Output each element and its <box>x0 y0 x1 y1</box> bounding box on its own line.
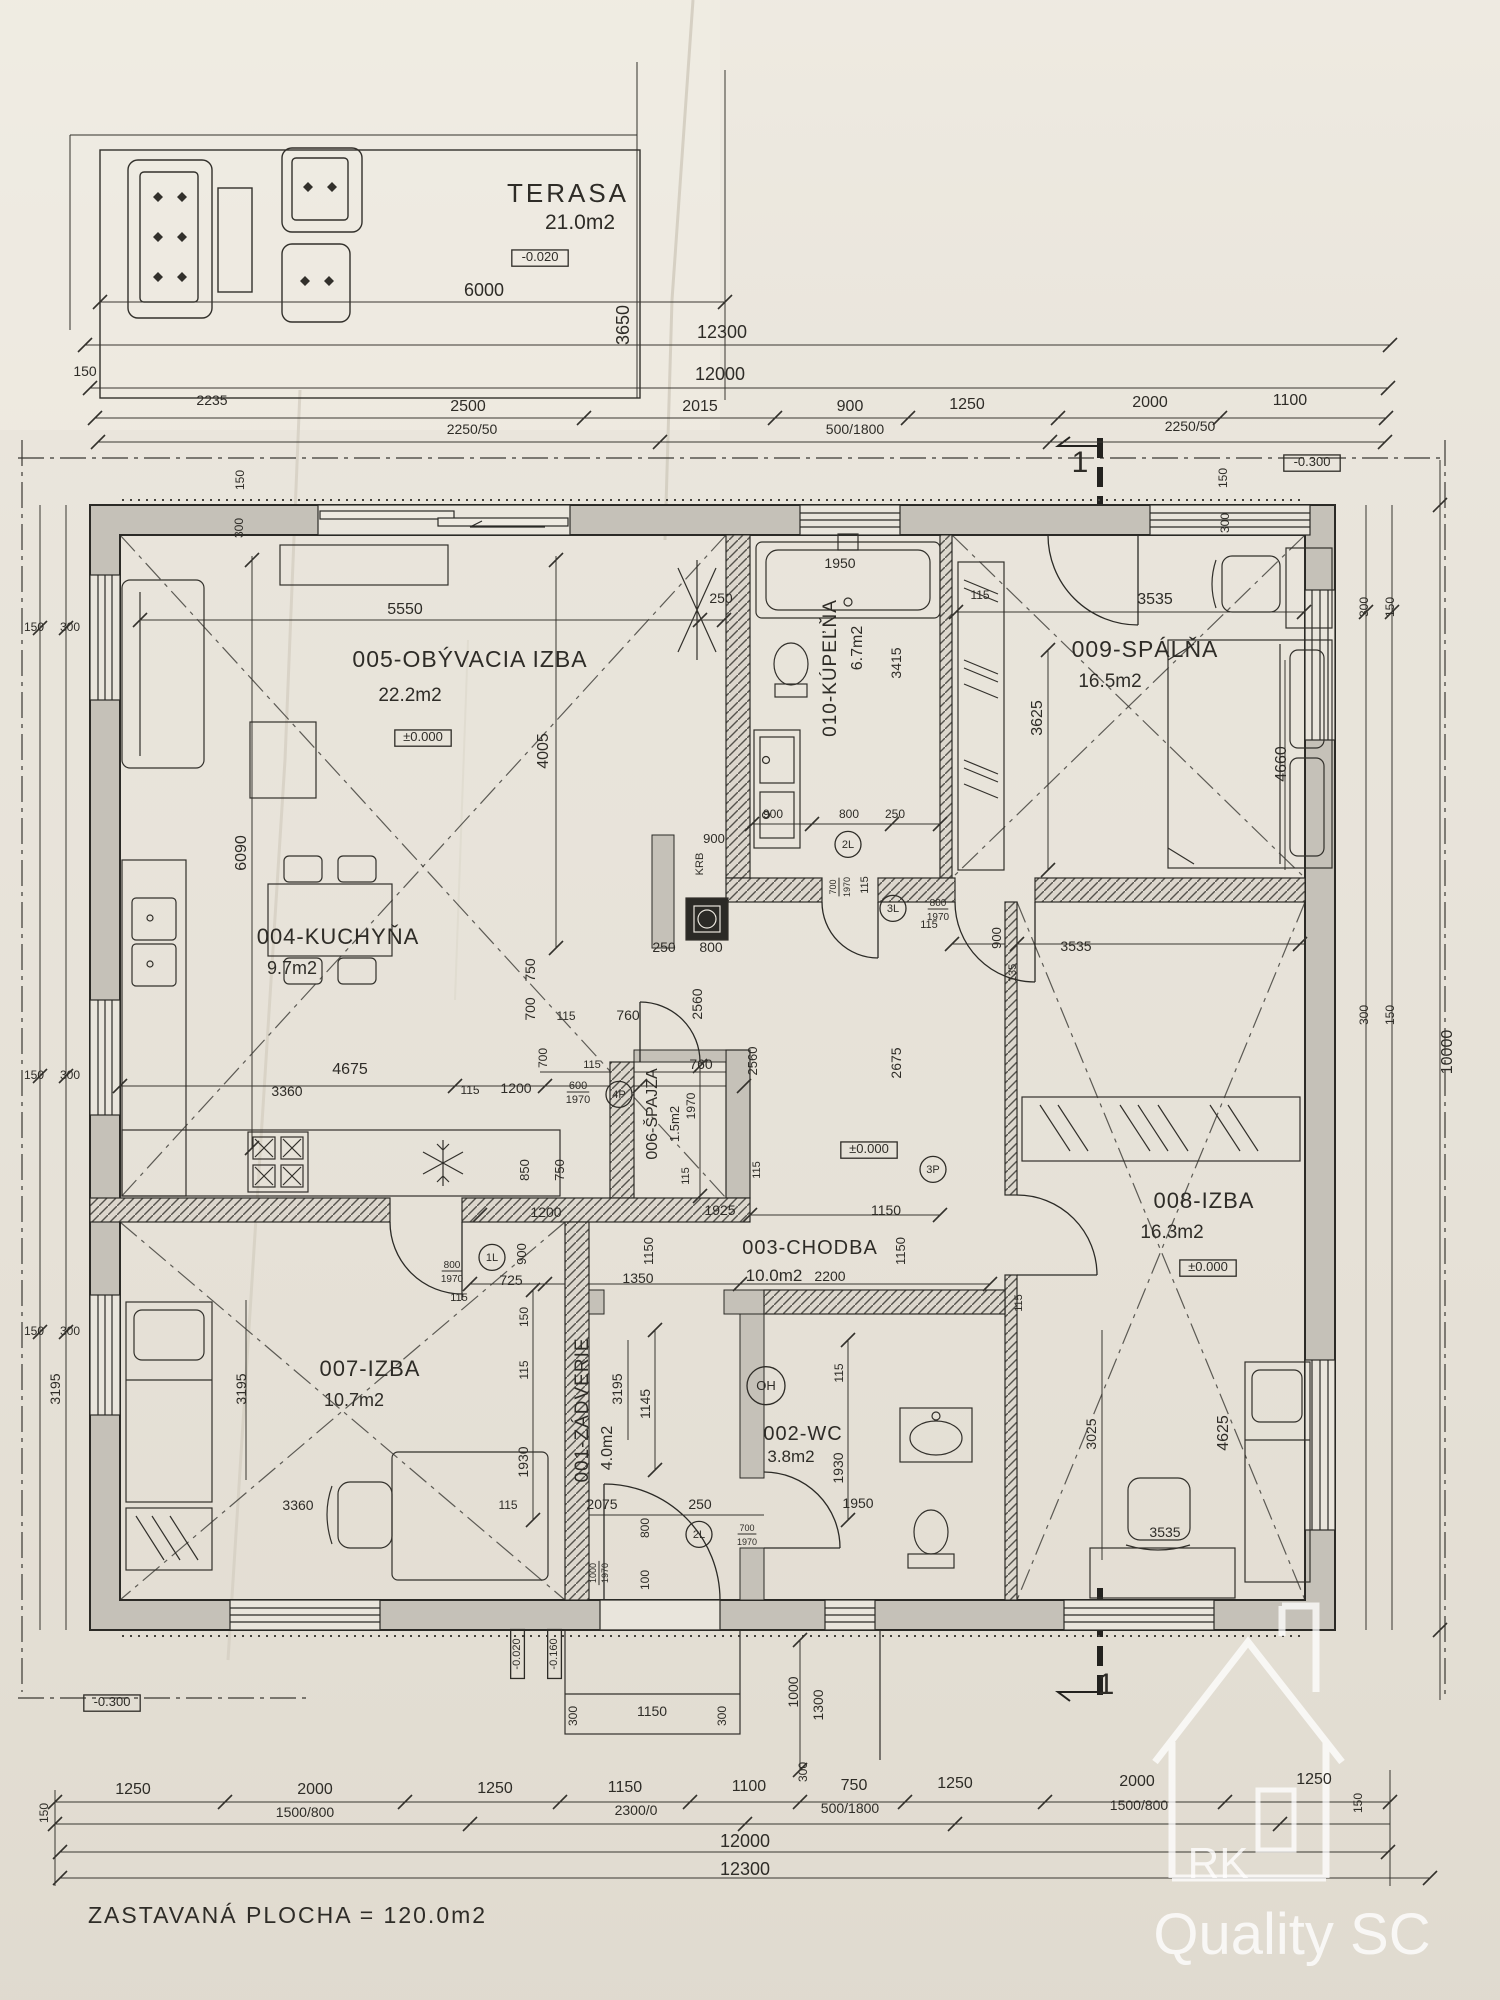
svg-text:800: 800 <box>699 939 723 955</box>
svg-text:2500: 2500 <box>450 398 486 415</box>
svg-text:2235: 2235 <box>196 392 227 408</box>
dim-label: 100 <box>638 1570 652 1590</box>
dim-label: 5550 <box>387 601 423 618</box>
svg-text:TERASA: TERASA <box>507 178 629 208</box>
dim-label: 3415 <box>888 647 904 678</box>
svg-text:008-IZBA: 008-IZBA <box>1154 1188 1255 1213</box>
svg-text:300: 300 <box>232 518 246 538</box>
svg-text:3195: 3195 <box>233 1373 249 1404</box>
svg-text:2560: 2560 <box>745 1047 760 1076</box>
dim-label: 1300 <box>810 1689 826 1720</box>
svg-text:300: 300 <box>566 1706 580 1726</box>
svg-text:1970: 1970 <box>566 1094 590 1106</box>
dim-label: 115 <box>517 1360 531 1379</box>
dim-label: 900 <box>989 927 1004 949</box>
svg-text:150: 150 <box>1351 1793 1365 1813</box>
dim-label: 1150 <box>637 1703 667 1719</box>
dim-label: 115 <box>751 1161 763 1179</box>
svg-text:2000: 2000 <box>297 1781 333 1798</box>
text-label: RK <box>1187 1839 1248 1888</box>
svg-text:750: 750 <box>522 958 538 982</box>
svg-text:3535: 3535 <box>1149 1524 1180 1540</box>
svg-text:2L: 2L <box>842 839 854 851</box>
dim-label: 1350 <box>622 1270 653 1286</box>
svg-text:3535: 3535 <box>1060 938 1091 954</box>
dim-label: 725 <box>499 1272 523 1288</box>
svg-text:150: 150 <box>1383 1005 1397 1025</box>
dim-label: 1250 <box>115 1781 151 1798</box>
svg-text:1: 1 <box>1072 446 1089 479</box>
svg-text:1970: 1970 <box>600 1563 610 1583</box>
svg-text:12300: 12300 <box>720 1859 770 1879</box>
svg-text:009-SPÁLŇA: 009-SPÁLŇA <box>1072 636 1219 662</box>
text-label: ZASTAVANÁ PLOCHA = 120.0m2 <box>88 1902 487 1928</box>
svg-text:±0.000: ±0.000 <box>403 729 443 744</box>
svg-text:1250: 1250 <box>937 1775 973 1792</box>
svg-text:2L: 2L <box>693 1529 705 1541</box>
svg-text:1100: 1100 <box>732 1778 767 1795</box>
dim-label: 700 <box>738 1523 757 1534</box>
dim-label: 2000 <box>1119 1773 1155 1790</box>
svg-text:6090: 6090 <box>233 835 250 871</box>
svg-text:ZASTAVANÁ PLOCHA = 120.0m2: ZASTAVANÁ PLOCHA = 120.0m2 <box>88 1902 487 1928</box>
svg-text:1: 1 <box>1098 1668 1115 1701</box>
svg-text:10.7m2: 10.7m2 <box>324 1390 384 1410</box>
svg-text:-0.020: -0.020 <box>511 1638 523 1669</box>
dim-label: 4625 <box>1215 1415 1232 1451</box>
text-label: 001-ZÁDVERIE <box>572 1337 593 1482</box>
svg-text:9.7m2: 9.7m2 <box>267 958 317 978</box>
svg-text:004-KUCHYŇA: 004-KUCHYŇA <box>257 924 420 949</box>
window-living-left <box>90 575 120 700</box>
svg-text:150: 150 <box>24 620 44 634</box>
svg-text:1150: 1150 <box>871 1202 901 1218</box>
svg-text:005-OBÝVACIA IZBA: 005-OBÝVACIA IZBA <box>352 646 587 672</box>
dim-label: 1250 <box>937 1775 973 1792</box>
dim-label: 750 <box>552 1159 567 1181</box>
svg-text:1950: 1950 <box>842 1495 873 1511</box>
dim-label: 900 <box>703 831 725 846</box>
svg-text:760: 760 <box>616 1007 640 1023</box>
svg-text:115: 115 <box>751 1161 763 1179</box>
fireplace <box>686 898 728 940</box>
svg-text:3535: 3535 <box>1137 591 1173 608</box>
text-label: 005-OBÝVACIA IZBA <box>352 646 587 672</box>
dim-label: 1200 <box>500 1080 531 1096</box>
svg-text:300: 300 <box>60 620 80 634</box>
svg-text:1200: 1200 <box>530 1204 561 1220</box>
dim-label: 1000 <box>588 1561 599 1585</box>
svg-text:750: 750 <box>552 1159 567 1181</box>
dim-label: 1930 <box>830 1452 846 1483</box>
svg-text:1500/800: 1500/800 <box>1110 1797 1169 1813</box>
svg-text:3025: 3025 <box>1083 1418 1099 1449</box>
dim-label: 2250/50 <box>1165 418 1216 434</box>
svg-text:1145: 1145 <box>637 1389 653 1419</box>
dim-label: 2075 <box>586 1496 617 1512</box>
dim-label: 800 <box>928 898 949 909</box>
svg-text:1950: 1950 <box>824 555 855 571</box>
svg-text:-0.020: -0.020 <box>522 249 559 264</box>
dim-label: 10.0m2 <box>746 1266 803 1285</box>
text-label: Quality SC <box>1153 1902 1430 1967</box>
dim-label: 150 <box>1351 1793 1365 1813</box>
svg-text:150: 150 <box>233 470 247 490</box>
svg-text:010-KÚPEĽŇA: 010-KÚPEĽŇA <box>819 599 841 737</box>
svg-text:KRB: KRB <box>694 853 706 876</box>
dim-label: 115 <box>680 1167 692 1185</box>
svg-text:12300: 12300 <box>697 322 747 342</box>
dim-label: 1150 <box>871 1202 901 1218</box>
dim-label: 3535 <box>1137 591 1173 608</box>
svg-text:-0.300: -0.300 <box>1294 454 1331 469</box>
dim-label: 1250 <box>949 396 985 413</box>
svg-text:900: 900 <box>703 831 725 846</box>
dim-label: 2675 <box>888 1047 904 1078</box>
svg-text:-0.160: -0.160 <box>548 1638 560 1669</box>
dim-label: 1925 <box>704 1202 735 1218</box>
svg-text:760: 760 <box>689 1056 713 1072</box>
dim-label: 150 <box>233 470 247 490</box>
dim-label: 115 <box>1013 1294 1025 1312</box>
svg-text:Quality SC: Quality SC <box>1153 1902 1430 1967</box>
dim-label: 3360 <box>282 1497 313 1513</box>
svg-text:1970: 1970 <box>684 1092 698 1119</box>
svg-text:800: 800 <box>638 1518 652 1538</box>
dim-label: 300 <box>796 1762 810 1782</box>
dim-label: 16.5m2 <box>1078 671 1141 692</box>
dim-label: 115 <box>498 1498 517 1512</box>
svg-text:900: 900 <box>989 927 1004 949</box>
svg-text:250: 250 <box>885 807 905 821</box>
dim-label: 600 <box>567 1080 589 1092</box>
dim-label: ±0.000 <box>395 729 451 746</box>
svg-text:150: 150 <box>24 1324 44 1338</box>
svg-text:1925: 1925 <box>704 1202 735 1218</box>
dim-label: 10.7m2 <box>324 1390 384 1410</box>
dim-label: 115 <box>583 1059 601 1071</box>
svg-text:1250: 1250 <box>949 396 985 413</box>
dim-label: 300 <box>1218 513 1232 533</box>
dim-label: 1200 <box>530 1204 561 1220</box>
window-kitchen-left <box>90 1000 120 1115</box>
dim-label: 1 <box>1072 446 1089 479</box>
dim-label: 1150 <box>641 1237 656 1265</box>
svg-text:1970: 1970 <box>842 877 852 897</box>
dim-label: 1100 <box>732 1778 767 1795</box>
window-bath-top <box>800 505 900 535</box>
text-label: TERASA <box>507 178 629 208</box>
svg-text:300: 300 <box>1357 597 1371 617</box>
dim-label: 2235 <box>196 392 227 408</box>
svg-text:2560: 2560 <box>689 988 705 1019</box>
svg-text:900: 900 <box>514 1243 529 1265</box>
text-label: 003-CHODBA <box>742 1237 878 1259</box>
svg-text:1970: 1970 <box>737 1537 757 1547</box>
dim-label: ±0.000 <box>1180 1259 1236 1276</box>
dim-label: 115 <box>920 919 938 931</box>
svg-text:300: 300 <box>1218 513 1232 533</box>
dim-label: 21.0m2 <box>545 211 615 234</box>
dim-label: 2015 <box>682 398 718 415</box>
dim-label: 150 <box>24 1324 44 1338</box>
dim-label: 700 <box>522 997 538 1021</box>
dim-label: 115 <box>859 876 871 894</box>
floor-plan-drawing: TERASA21.0m2-0.0206000365012300120001502… <box>0 0 1500 2000</box>
dim-label: 700 <box>536 1048 550 1068</box>
svg-text:1250: 1250 <box>115 1781 151 1798</box>
svg-text:006-ŠPAJZA: 006-ŠPAJZA <box>642 1068 661 1160</box>
svg-text:4625: 4625 <box>1215 1415 1232 1451</box>
svg-text:150: 150 <box>37 1803 51 1823</box>
svg-text:500/1800: 500/1800 <box>826 421 885 437</box>
dim-label: 3195 <box>47 1373 63 1404</box>
svg-text:5550: 5550 <box>387 601 423 618</box>
svg-text:4005: 4005 <box>535 733 552 769</box>
dim-label: 6090 <box>233 835 250 871</box>
dim-label: 3360 <box>271 1083 302 1099</box>
text-label: 004-KUCHYŇA <box>257 924 420 949</box>
svg-text:600: 600 <box>569 1080 587 1092</box>
svg-text:900: 900 <box>763 807 783 821</box>
dim-label: 4660 <box>1273 746 1290 782</box>
dim-label: 6000 <box>464 280 504 300</box>
dim-label: 1150 <box>608 1779 643 1796</box>
svg-text:003-CHODBA: 003-CHODBA <box>742 1237 878 1259</box>
svg-text:3415: 3415 <box>888 647 904 678</box>
svg-text:4660: 4660 <box>1273 746 1290 782</box>
dim-label: 1500/800 <box>276 1804 335 1820</box>
entrance-opening <box>600 1600 720 1630</box>
dim-label: 760 <box>689 1056 713 1072</box>
svg-text:2000: 2000 <box>1132 394 1168 411</box>
floor-plan-photo: TERASA21.0m2-0.0206000365012300120001502… <box>0 0 1500 2000</box>
svg-text:250: 250 <box>652 939 676 955</box>
dim-label: 1970 <box>600 1563 610 1583</box>
svg-text:900: 900 <box>837 398 864 415</box>
svg-text:800: 800 <box>930 898 947 909</box>
svg-text:100: 100 <box>638 1570 652 1590</box>
dim-label: 800 <box>442 1260 463 1271</box>
svg-text:3P: 3P <box>926 1164 939 1176</box>
dim-label: 115 <box>970 588 989 602</box>
svg-text:16.5m2: 16.5m2 <box>1078 671 1141 692</box>
svg-text:700: 700 <box>536 1048 550 1068</box>
text-label: KRB <box>694 853 706 876</box>
dim-label: 300 <box>1357 597 1371 617</box>
dim-label: 300 <box>566 1706 580 1726</box>
svg-text:007-IZBA: 007-IZBA <box>320 1356 421 1381</box>
dim-label: 115 <box>556 1009 575 1023</box>
svg-text:1350: 1350 <box>622 1270 653 1286</box>
dim-label: 3650 <box>613 305 633 345</box>
dim-label: 500/1800 <box>826 421 885 437</box>
dim-label: 16.3m2 <box>1140 1222 1203 1243</box>
svg-text:700: 700 <box>522 997 538 1021</box>
svg-text:12000: 12000 <box>720 1831 770 1851</box>
dim-label: 1000 <box>785 1676 801 1707</box>
dim-label: 2560 <box>745 1047 760 1076</box>
dim-label: 2300/0 <box>615 1802 658 1818</box>
svg-text:2250/50: 2250/50 <box>1165 418 1216 434</box>
svg-text:725: 725 <box>499 1272 523 1288</box>
dim-label: 3535 <box>1149 1524 1180 1540</box>
dim-label: 3025 <box>1083 1418 1099 1449</box>
dim-label: 9.7m2 <box>267 958 317 978</box>
dim-label: 1145 <box>637 1389 653 1419</box>
dim-label: 300 <box>60 620 80 634</box>
svg-text:115: 115 <box>450 1292 468 1304</box>
dim-label: 12300 <box>697 322 747 342</box>
svg-text:6.7m2: 6.7m2 <box>849 626 866 671</box>
dim-label: 1970 <box>566 1094 590 1106</box>
svg-text:1250: 1250 <box>477 1780 513 1797</box>
dim-label: 800 <box>699 939 723 955</box>
svg-text:115: 115 <box>583 1059 601 1071</box>
dim-label: 700 <box>828 878 839 897</box>
dim-label: 2250/50 <box>447 421 498 437</box>
dim-label: 500/1800 <box>821 1800 880 1816</box>
svg-text:1300: 1300 <box>810 1689 826 1720</box>
dim-label: 250 <box>652 939 676 955</box>
svg-text:800: 800 <box>839 807 859 821</box>
dim-label: 150 <box>1216 468 1230 488</box>
dim-label: 2560 <box>689 988 705 1019</box>
svg-text:2075: 2075 <box>586 1496 617 1512</box>
window-bedroom-right <box>1305 590 1335 740</box>
text-label: 006-ŠPAJZA <box>642 1068 661 1160</box>
svg-text:001-ZÁDVERIE: 001-ZÁDVERIE <box>572 1337 593 1482</box>
dim-label: 1930 <box>515 1446 531 1477</box>
svg-text:1500/800: 1500/800 <box>276 1804 335 1820</box>
dim-label: 1950 <box>824 555 855 571</box>
window-room007-bottom <box>230 1600 380 1630</box>
dim-label: 750 <box>841 1777 868 1794</box>
svg-text:1200: 1200 <box>500 1080 531 1096</box>
svg-text:2675: 2675 <box>888 1047 904 1078</box>
dim-label: 2500 <box>450 398 486 415</box>
svg-text:115: 115 <box>517 1360 531 1379</box>
svg-text:2200: 2200 <box>814 1268 845 1284</box>
svg-text:500/1800: 500/1800 <box>821 1800 880 1816</box>
dim-label: 22.2m2 <box>378 685 441 706</box>
svg-text:22.2m2: 22.2m2 <box>378 685 441 706</box>
svg-text:21.0m2: 21.0m2 <box>545 211 615 234</box>
dim-label: 150 <box>24 1068 44 1082</box>
svg-text:2015: 2015 <box>682 398 718 415</box>
svg-text:115: 115 <box>859 876 871 894</box>
dim-label: 300 <box>715 1706 729 1726</box>
dim-label: 3.8m2 <box>767 1447 814 1466</box>
dim-label: 1.5m2 <box>667 1106 682 1142</box>
dim-label: 115 <box>460 1083 479 1097</box>
svg-text:-0.300: -0.300 <box>94 1694 131 1709</box>
svg-text:250: 250 <box>688 1496 712 1512</box>
svg-text:1250: 1250 <box>1296 1771 1332 1788</box>
svg-text:2300/0: 2300/0 <box>615 1802 658 1818</box>
svg-text:2000: 2000 <box>1119 1773 1155 1790</box>
dim-label: 6.7m2 <box>849 626 866 671</box>
svg-text:750: 750 <box>841 1777 868 1794</box>
svg-text:300: 300 <box>60 1324 80 1338</box>
dim-label: 4675 <box>332 1061 368 1078</box>
dim-label: 800 <box>839 807 859 821</box>
svg-text:4675: 4675 <box>332 1061 368 1078</box>
svg-text:±0.000: ±0.000 <box>1188 1259 1228 1274</box>
svg-text:2250/50: 2250/50 <box>447 421 498 437</box>
paper-background <box>0 0 1500 2000</box>
dim-label: 1970 <box>737 1537 757 1547</box>
svg-text:3360: 3360 <box>271 1083 302 1099</box>
svg-text:300: 300 <box>1357 1005 1371 1025</box>
svg-text:850: 850 <box>517 1159 532 1181</box>
svg-text:115: 115 <box>1013 1294 1025 1312</box>
window-room008-bottom <box>1064 1600 1214 1630</box>
dim-label: 1100 <box>1273 392 1308 409</box>
svg-text:115: 115 <box>460 1083 479 1097</box>
dim-label: 1250 <box>1296 1771 1332 1788</box>
text-label: 007-IZBA <box>320 1356 421 1381</box>
dim-label: 10000 <box>1439 1030 1456 1075</box>
svg-text:3360: 3360 <box>282 1497 313 1513</box>
dim-label: 12300 <box>720 1859 770 1879</box>
text-label: 009-SPÁLŇA <box>1072 636 1219 662</box>
dim-label: 900 <box>514 1243 529 1265</box>
svg-text:1150: 1150 <box>893 1237 908 1265</box>
dim-label: 300 <box>232 518 246 538</box>
dim-label: 150 <box>73 363 97 379</box>
dim-label: 115 <box>450 1292 468 1304</box>
svg-text:1930: 1930 <box>515 1446 531 1477</box>
window-room007-left <box>90 1295 120 1415</box>
svg-text:150: 150 <box>24 1068 44 1082</box>
svg-text:3.8m2: 3.8m2 <box>767 1447 814 1466</box>
svg-text:150: 150 <box>1383 597 1397 617</box>
window-living-top <box>318 505 570 535</box>
svg-text:1930: 1930 <box>830 1452 846 1483</box>
svg-text:1970: 1970 <box>441 1274 464 1285</box>
svg-text:002-WC: 002-WC <box>763 1423 842 1445</box>
dim-label: 12000 <box>695 364 745 384</box>
svg-text:800: 800 <box>444 1260 461 1271</box>
svg-text:115: 115 <box>556 1009 575 1023</box>
dim-label: 3625 <box>1029 700 1046 736</box>
svg-text:RK: RK <box>1187 1839 1248 1888</box>
svg-text:300: 300 <box>60 1068 80 1082</box>
dim-label: 900 <box>837 398 864 415</box>
svg-text:150: 150 <box>73 363 97 379</box>
svg-text:3195: 3195 <box>609 1373 625 1404</box>
svg-text:250: 250 <box>709 590 733 606</box>
svg-text:12000: 12000 <box>695 364 745 384</box>
svg-text:1150: 1150 <box>608 1779 643 1796</box>
text-label: 010-KÚPEĽŇA <box>819 599 841 737</box>
dim-label: 2200 <box>814 1268 845 1284</box>
svg-text:150: 150 <box>517 1307 531 1327</box>
svg-text:OH: OH <box>756 1378 776 1393</box>
svg-text:115: 115 <box>680 1167 692 1185</box>
svg-text:1L: 1L <box>486 1252 498 1264</box>
svg-text:3625: 3625 <box>1029 700 1046 736</box>
svg-text:150: 150 <box>1216 468 1230 488</box>
dim-label: 150 <box>517 1307 531 1327</box>
svg-text:1000: 1000 <box>785 1676 801 1707</box>
dim-label: ±0.000 <box>841 1141 897 1158</box>
svg-text:10000: 10000 <box>1439 1030 1456 1075</box>
svg-text:135: 135 <box>1007 964 1019 982</box>
dim-label: 1970 <box>441 1274 464 1285</box>
svg-text:3195: 3195 <box>47 1373 63 1404</box>
